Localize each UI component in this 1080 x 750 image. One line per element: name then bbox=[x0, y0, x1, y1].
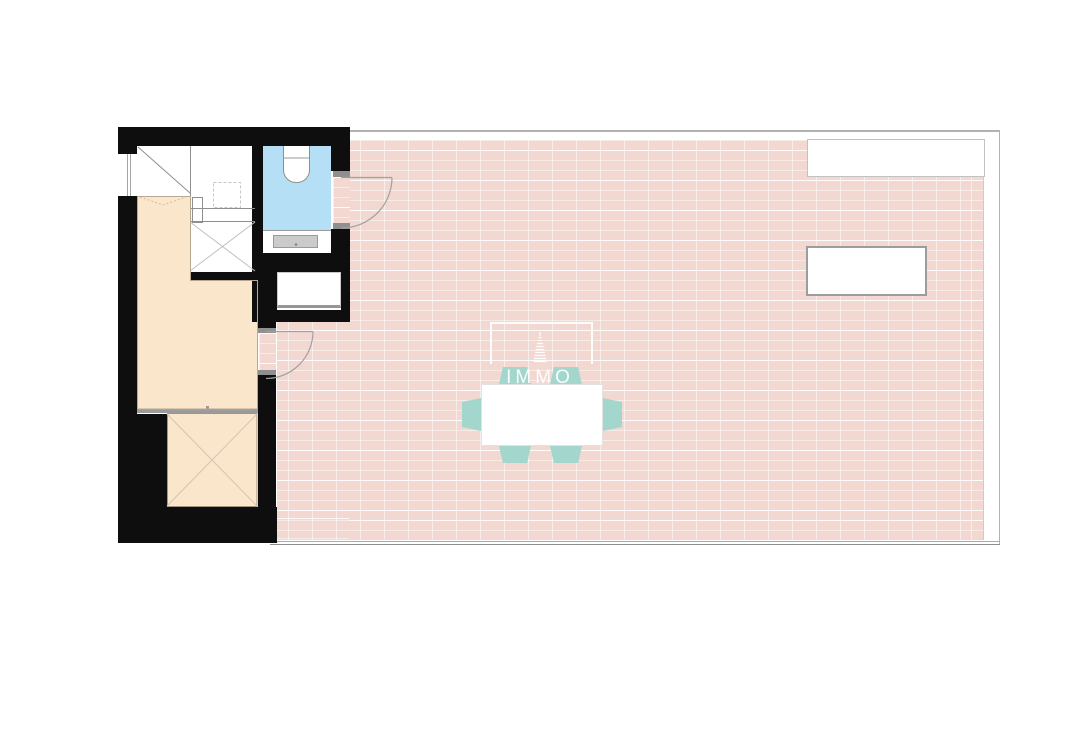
terrace-tile-edge-right bbox=[983, 139, 984, 540]
door-jamb bbox=[333, 171, 350, 177]
room-upper bbox=[137, 196, 190, 281]
chair-bottom-right bbox=[550, 446, 582, 463]
wall-segment bbox=[118, 507, 277, 543]
door-opening-floor bbox=[333, 177, 350, 223]
wall-niche bbox=[277, 272, 341, 308]
wall-segment bbox=[118, 146, 137, 154]
chair-bottom-left bbox=[499, 446, 531, 463]
vanity-unit bbox=[273, 235, 318, 248]
window-left bbox=[118, 154, 137, 196]
dining-table bbox=[481, 384, 603, 446]
terrace-floor-extension bbox=[277, 322, 349, 540]
watermark-text: IMMO bbox=[460, 367, 620, 389]
roof-opening bbox=[807, 139, 985, 177]
door-opening-floor bbox=[259, 333, 276, 370]
wall-segment bbox=[252, 146, 263, 253]
wall-segment bbox=[252, 310, 350, 322]
terrace-boundary-top bbox=[340, 130, 1000, 132]
terrace-boundary-bottom-outer bbox=[270, 541, 1000, 543]
terrace-boundary-bottom-inner bbox=[270, 544, 1000, 546]
door-leaf bbox=[192, 197, 203, 223]
floor-plan-canvas: IMMO bbox=[0, 0, 1080, 750]
door-jamb bbox=[258, 370, 276, 375]
wall-segment bbox=[331, 229, 350, 253]
door-jamb bbox=[333, 223, 350, 229]
chair-left bbox=[462, 398, 481, 431]
wall-segment bbox=[331, 146, 350, 171]
terrace-boundary-right bbox=[999, 130, 1001, 545]
toilet bbox=[283, 146, 310, 183]
separator-tick bbox=[206, 406, 209, 409]
wall-segment bbox=[118, 127, 350, 146]
skylight bbox=[806, 246, 927, 296]
wall-segment bbox=[258, 375, 276, 543]
terrace-floor bbox=[349, 140, 984, 540]
wall-segment bbox=[252, 253, 350, 272]
wall-segment bbox=[341, 272, 350, 310]
door-jamb bbox=[258, 328, 276, 333]
watermark-frame bbox=[490, 322, 593, 364]
chair-right bbox=[603, 398, 622, 431]
wall-segment bbox=[118, 196, 137, 414]
void-shaft bbox=[167, 413, 257, 507]
wall-segment bbox=[190, 272, 258, 280]
room-lower bbox=[137, 280, 258, 410]
